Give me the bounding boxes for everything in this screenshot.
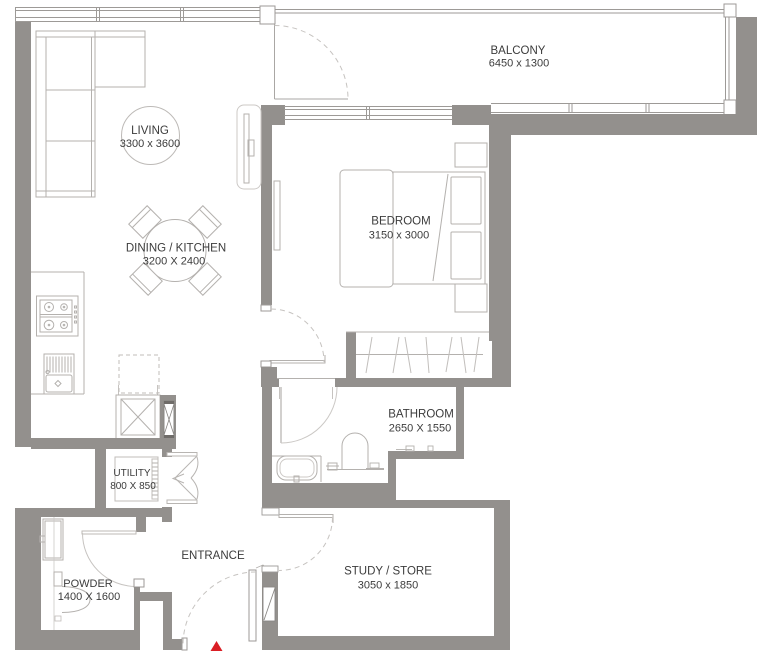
svg-text:3050 x 1850: 3050 x 1850 [358,580,419,592]
svg-text:BEDROOM: BEDROOM [371,216,430,228]
svg-text:2650 X 1550: 2650 X 1550 [389,423,451,435]
svg-text:3150 x 3000: 3150 x 3000 [369,230,430,242]
svg-text:LIVING: LIVING [131,125,169,137]
svg-text:DINING / KITCHEN: DINING / KITCHEN [126,243,226,255]
svg-text:3300 x 3600: 3300 x 3600 [120,138,181,150]
svg-text:STUDY / STORE: STUDY / STORE [344,566,432,578]
svg-text:ENTRANCE: ENTRANCE [181,550,245,562]
svg-text:POWDER: POWDER [63,578,113,590]
svg-text:UTILITY: UTILITY [113,468,151,479]
svg-text:6450 x 1300: 6450 x 1300 [489,58,550,70]
svg-text:3200 X 2400: 3200 X 2400 [143,256,205,268]
svg-text:1400 X 1600: 1400 X 1600 [58,591,120,603]
svg-text:800 X 850: 800 X 850 [110,481,156,492]
svg-text:BALCONY: BALCONY [491,45,546,57]
svg-text:BATHROOM: BATHROOM [388,409,454,421]
